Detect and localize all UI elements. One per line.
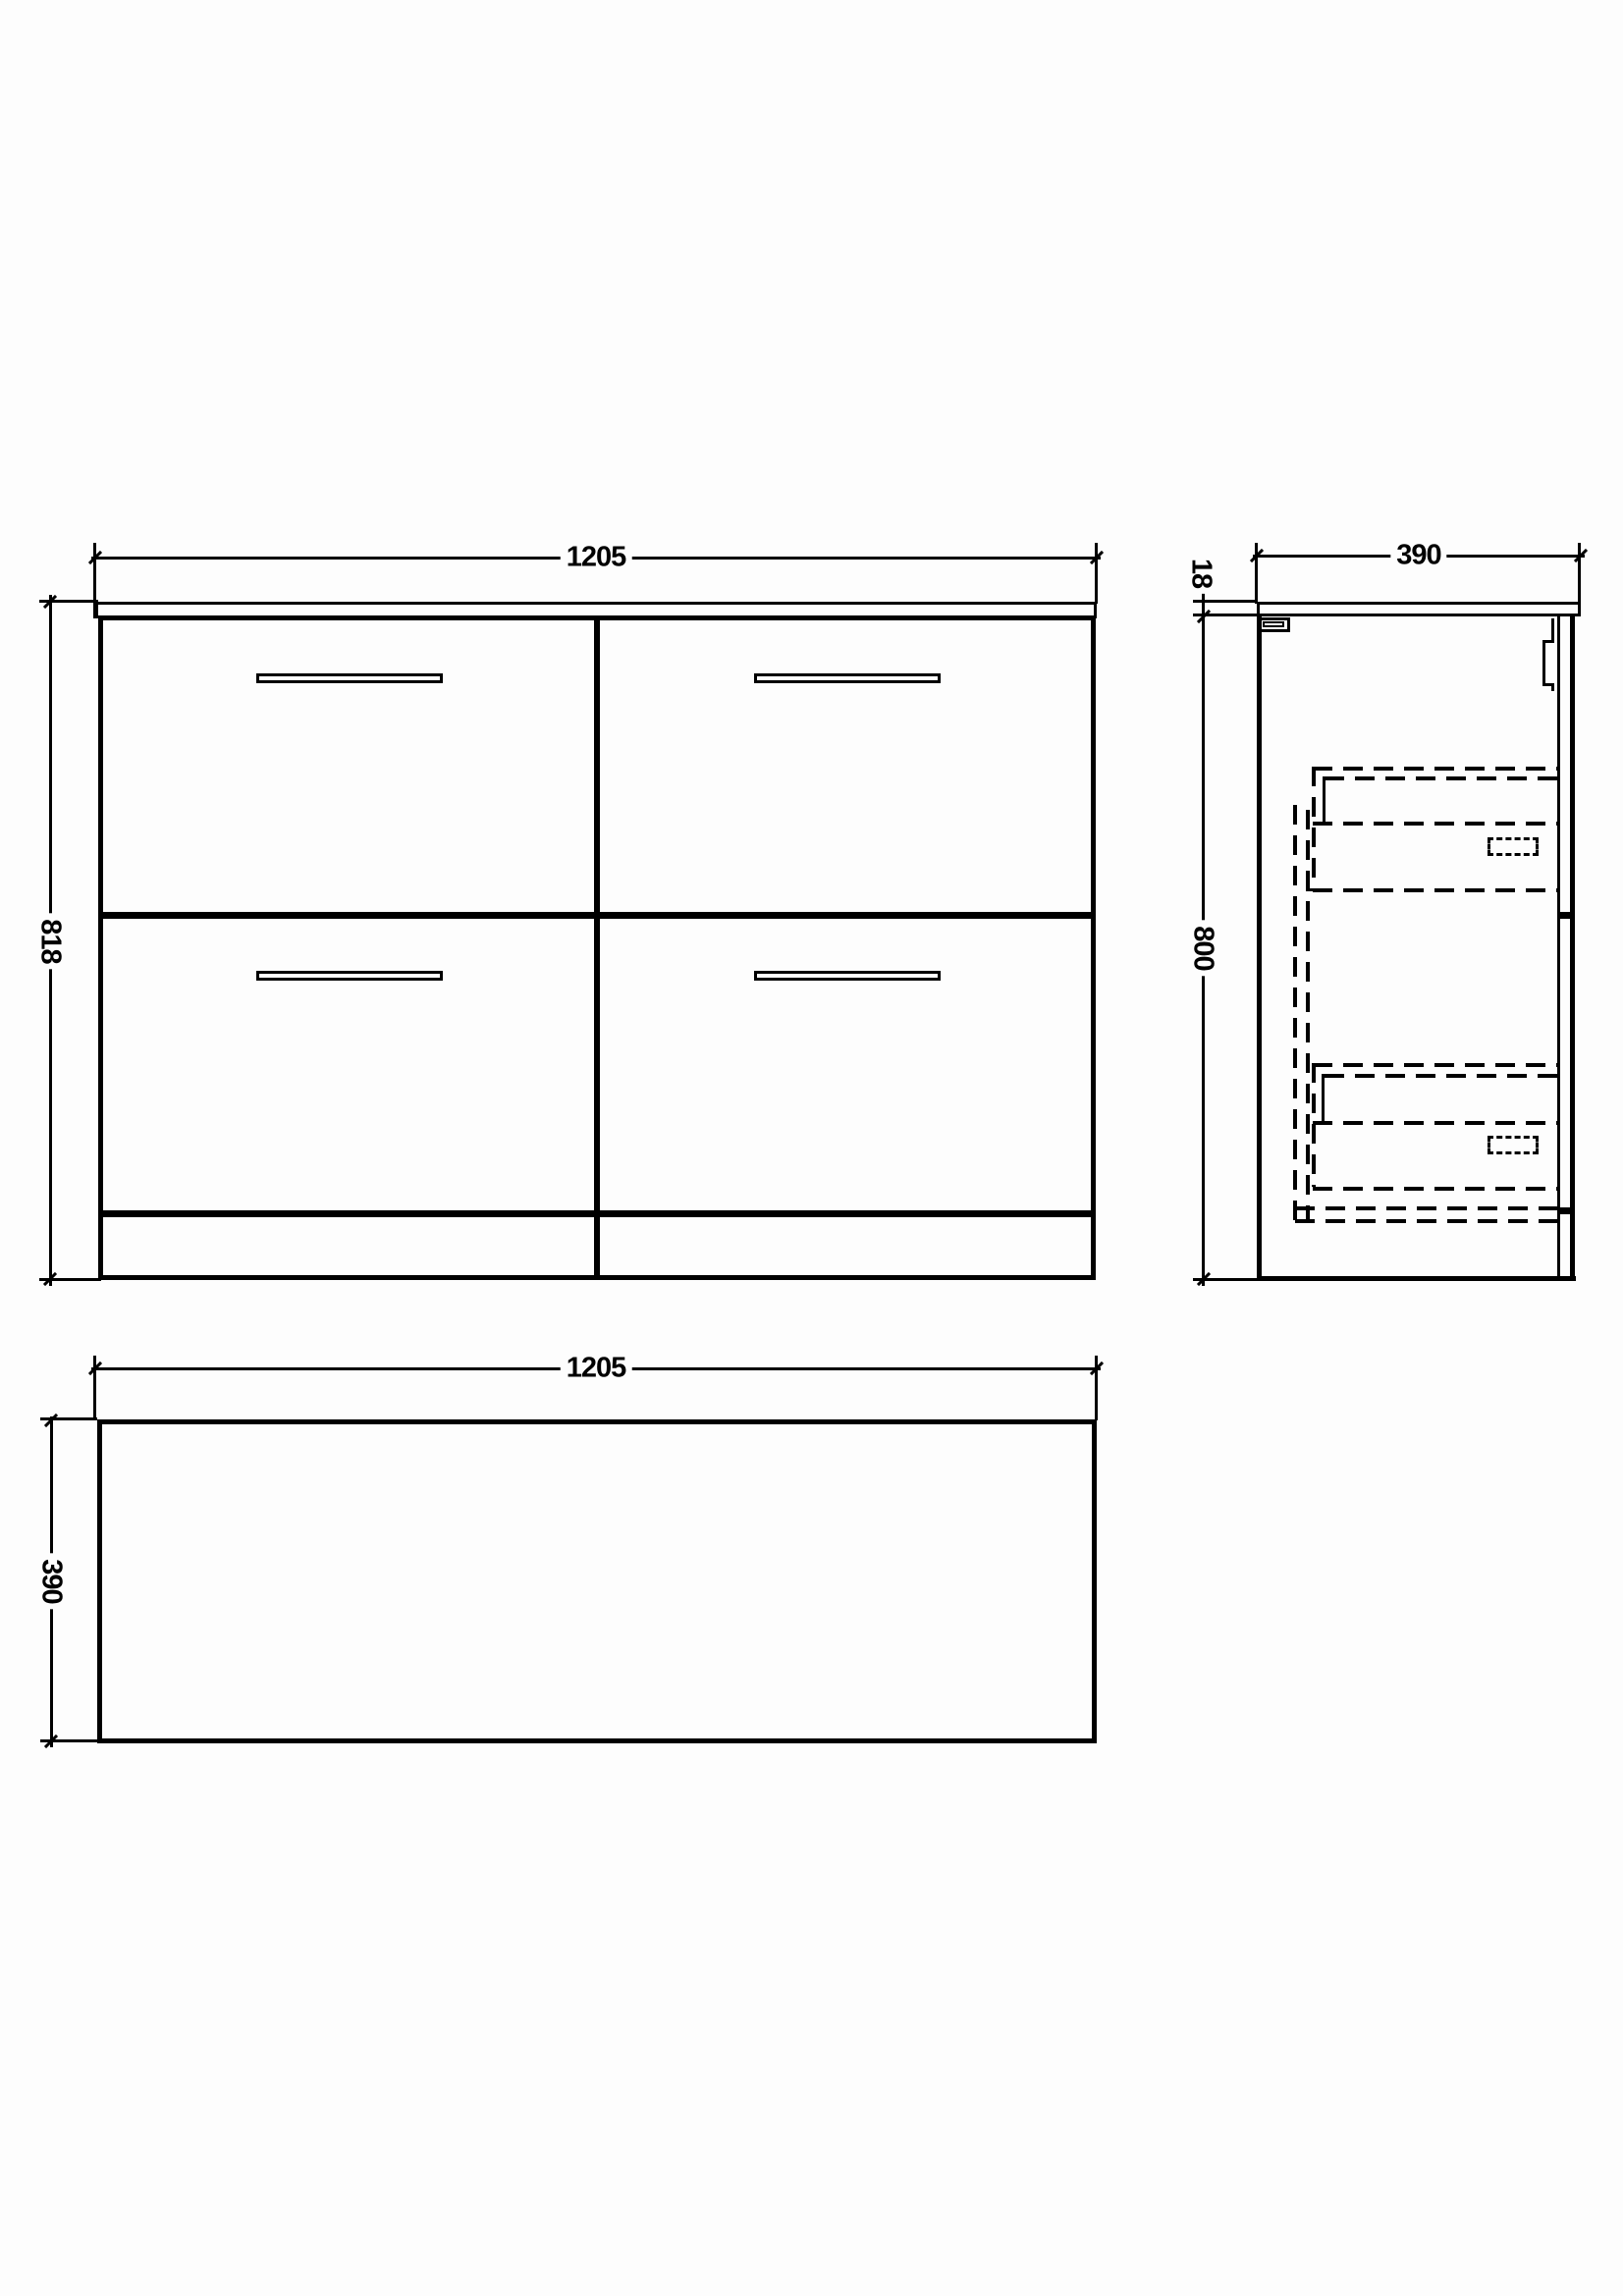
fixing-bracket-inner [1263, 621, 1284, 627]
plan-depth-dim-label: 390 [36, 1553, 67, 1609]
side-worktop [1257, 602, 1581, 616]
front-width-ext-right [1095, 543, 1098, 604]
lower-drawer-box-line [1313, 1063, 1559, 1067]
side-worktop-dim-label: 18 [1186, 553, 1217, 594]
drawer-handle-top-left [256, 673, 443, 683]
upper-drawer-box-line [1312, 767, 1316, 891]
side-front-panel-outer [1570, 616, 1575, 1281]
side-front-panel-inner [1557, 616, 1560, 1281]
lower-drawer-box-edge [1322, 1074, 1325, 1125]
lower-drawer-box-line [1295, 1219, 1557, 1223]
upper-drawer-box-line [1313, 888, 1559, 892]
front-drawer-divider [98, 912, 1096, 919]
upper-drawer-box-edge [1323, 776, 1325, 826]
front-width-dim-label: 1205 [561, 543, 632, 573]
plan-worktop-outline [97, 1419, 1097, 1743]
side-worktop-ext-top [1193, 600, 1257, 603]
lower-drawer-clip [1488, 1136, 1539, 1154]
side-front-panel-joint-upper [1557, 912, 1575, 919]
lower-drawer-box-line [1312, 1063, 1316, 1187]
runner-rail-dashed [1293, 805, 1297, 1224]
side-bottom-panel [1257, 1276, 1576, 1281]
lower-drawer-box-line [1313, 1187, 1559, 1191]
upper-drawer-clip [1488, 837, 1539, 856]
drawer-handle-bottom-left [256, 971, 443, 981]
handle-profile-segment [1551, 618, 1554, 640]
handle-profile-segment [1551, 683, 1554, 691]
upper-drawer-box-line [1313, 822, 1559, 826]
side-depth-ext-right [1578, 543, 1581, 604]
drawer-handle-bottom-right [754, 971, 941, 981]
technical-drawing-canvas: 1205 818 390 18 [0, 0, 1623, 2296]
upper-drawer-box-line [1325, 776, 1559, 780]
lower-drawer-box-line [1325, 1074, 1559, 1078]
side-back-panel [1257, 616, 1262, 1281]
front-carcass-left [98, 615, 103, 1280]
front-plinth-line [98, 1210, 1096, 1217]
side-height-dim-label: 800 [1188, 920, 1218, 976]
runner-rail-dashed [1306, 810, 1310, 1222]
front-center-divider [594, 615, 600, 1280]
side-depth-dim-label: 390 [1390, 541, 1446, 571]
lower-drawer-box-line [1295, 1206, 1557, 1210]
side-front-panel-joint-lower [1557, 1207, 1575, 1214]
lower-drawer-box-line [1313, 1121, 1559, 1125]
front-carcass-right [1091, 615, 1096, 1280]
plan-width-dim-label: 1205 [561, 1354, 632, 1384]
front-height-dim-label: 818 [35, 913, 66, 969]
drawer-handle-top-right [754, 673, 941, 683]
upper-drawer-box-line [1313, 767, 1559, 771]
handle-profile-segment [1542, 640, 1545, 686]
